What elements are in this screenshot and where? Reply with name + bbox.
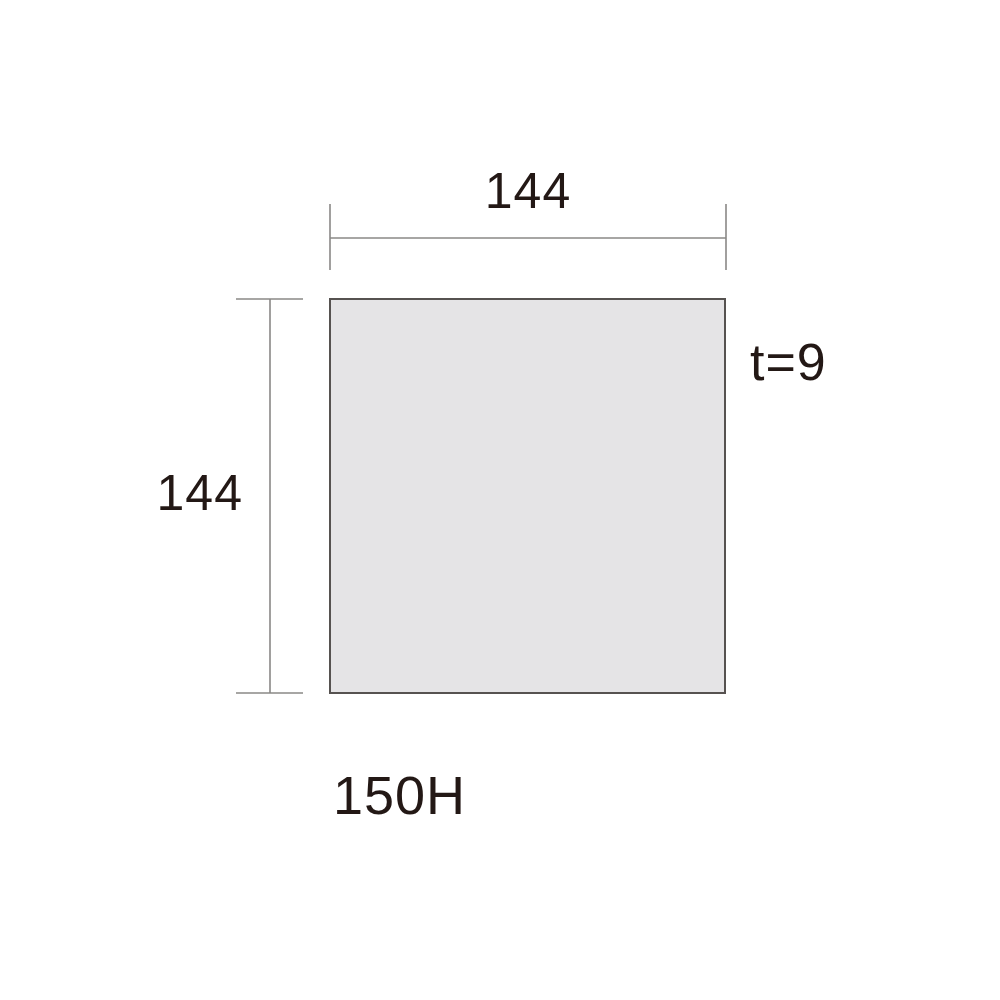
thickness-annotation: t=9: [750, 336, 827, 388]
width-dimension-value: 144: [330, 166, 726, 216]
model-name: 150H: [333, 768, 466, 822]
dimension-drawing: 144 144 t=9 150H: [0, 0, 1000, 1000]
height-dimension: [236, 299, 303, 693]
plate-shape: [330, 299, 725, 693]
height-dimension-value: 144: [110, 468, 243, 518]
